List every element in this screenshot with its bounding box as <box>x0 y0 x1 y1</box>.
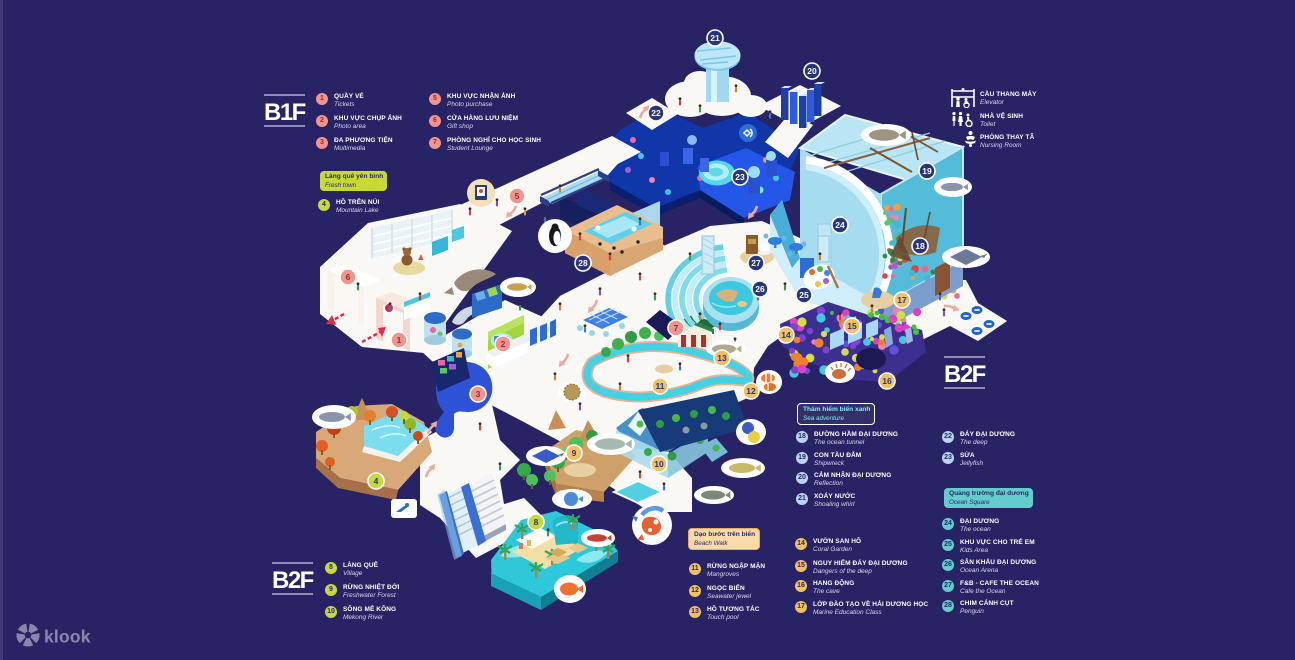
svg-text:13: 13 <box>717 353 727 363</box>
svg-text:17: 17 <box>897 295 907 305</box>
svg-text:20: 20 <box>807 66 817 76</box>
svg-text:28: 28 <box>578 258 588 268</box>
svg-text:19: 19 <box>922 166 932 176</box>
svg-text:18: 18 <box>915 241 925 251</box>
svg-text:10: 10 <box>654 459 664 469</box>
svg-text:4: 4 <box>374 476 379 486</box>
svg-text:27: 27 <box>751 258 761 268</box>
svg-text:2: 2 <box>501 339 506 349</box>
svg-text:12: 12 <box>746 386 756 396</box>
svg-text:23: 23 <box>735 172 745 182</box>
svg-text:11: 11 <box>656 381 665 391</box>
svg-text:16: 16 <box>882 376 892 386</box>
svg-text:21: 21 <box>710 33 720 43</box>
svg-text:22: 22 <box>651 108 661 118</box>
svg-text:9: 9 <box>572 448 577 458</box>
svg-text:5: 5 <box>515 191 520 201</box>
svg-text:26: 26 <box>755 284 765 294</box>
svg-text:24: 24 <box>835 220 845 230</box>
svg-text:15: 15 <box>847 321 857 331</box>
svg-text:6: 6 <box>346 272 351 282</box>
svg-text:14: 14 <box>781 330 791 340</box>
svg-text:8: 8 <box>534 517 539 527</box>
svg-text:25: 25 <box>799 290 809 300</box>
svg-text:1: 1 <box>397 335 402 345</box>
svg-text:3: 3 <box>476 389 481 399</box>
svg-text:klook: klook <box>44 627 91 647</box>
svg-text:7: 7 <box>674 323 679 333</box>
